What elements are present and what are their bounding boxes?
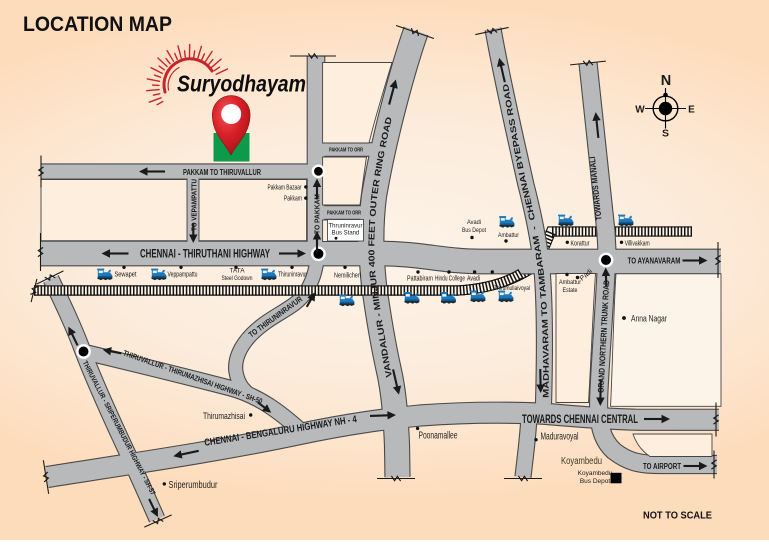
svg-text:CHENNAI - THIRUTHANI HIGHWAY: CHENNAI - THIRUTHANI HIGHWAY xyxy=(140,249,270,261)
svg-text:W: W xyxy=(635,105,645,116)
svg-text:N: N xyxy=(661,73,671,89)
svg-text:Avadi: Avadi xyxy=(467,219,481,226)
svg-text:Pakkam: Pakkam xyxy=(284,196,302,203)
svg-text:Poonamallee: Poonamallee xyxy=(419,430,458,441)
svg-text:Pakkam Bazaar: Pakkam Bazaar xyxy=(268,185,302,192)
svg-text:Thiruninravur: Thiruninravur xyxy=(278,272,307,279)
svg-text:S: S xyxy=(662,128,669,140)
svg-text:Steel Godown: Steel Godown xyxy=(222,275,253,282)
svg-text:Maduravoyal: Maduravoyal xyxy=(541,431,579,442)
svg-text:Koyambedu: Koyambedu xyxy=(578,470,613,477)
svg-text:Thruninravur: Thruninravur xyxy=(328,224,362,230)
svg-text:TOWARDS CHENNAI CENTRAL: TOWARDS CHENNAI CENTRAL xyxy=(522,414,638,426)
svg-text:NOT TO SCALE: NOT TO SCALE xyxy=(643,510,712,522)
svg-text:Ambattur: Ambattur xyxy=(559,279,582,286)
svg-text:Nemilicheri: Nemilicheri xyxy=(334,273,361,280)
svg-text:Pattabiram: Pattabiram xyxy=(407,276,433,283)
svg-text:Veppampattu: Veppampattu xyxy=(168,272,198,279)
svg-text:Villivakkam: Villivakkam xyxy=(625,240,650,247)
svg-text:Sriperumbudur: Sriperumbudur xyxy=(169,480,219,491)
svg-text:TO VEPAMPATTU: TO VEPAMPATTU xyxy=(190,179,199,231)
svg-text:Bus Depot: Bus Depot xyxy=(462,227,486,234)
svg-text:Ambattur: Ambattur xyxy=(498,232,520,239)
svg-text:Thirumazhisai: Thirumazhisai xyxy=(203,411,245,422)
svg-text:Anna Nagar: Anna Nagar xyxy=(631,314,667,325)
svg-text:Avadi: Avadi xyxy=(467,276,480,283)
svg-text:Suryodhayam: Suryodhayam xyxy=(177,71,306,97)
svg-text:PAKKAM TO ORR: PAKKAM TO ORR xyxy=(329,148,363,154)
svg-text:TO AYANAVARAM: TO AYANAVARAM xyxy=(628,255,681,265)
svg-text:TO PAKKAM: TO PAKKAM xyxy=(313,194,322,234)
svg-text:E: E xyxy=(688,105,695,116)
svg-text:TATA: TATA xyxy=(230,268,246,275)
svg-text:Bus Stand: Bus Stand xyxy=(332,231,360,237)
svg-text:PAKKAM TO THIRUVALLUR: PAKKAM TO THIRUVALLUR xyxy=(183,168,261,177)
svg-text:Estate: Estate xyxy=(563,287,578,294)
svg-text:Bus Depot: Bus Depot xyxy=(580,478,611,485)
svg-text:Korattur: Korattur xyxy=(571,240,591,247)
svg-text:LOCATION MAP: LOCATION MAP xyxy=(23,12,172,36)
svg-text:PAKKAM TO ORR: PAKKAM TO ORR xyxy=(327,211,361,217)
svg-text:TO AIRPORT: TO AIRPORT xyxy=(643,462,681,471)
svg-text:Sewapet: Sewapet xyxy=(115,272,137,279)
svg-text:Hindu College: Hindu College xyxy=(435,276,465,283)
svg-text:Koyambedu: Koyambedu xyxy=(561,456,602,467)
